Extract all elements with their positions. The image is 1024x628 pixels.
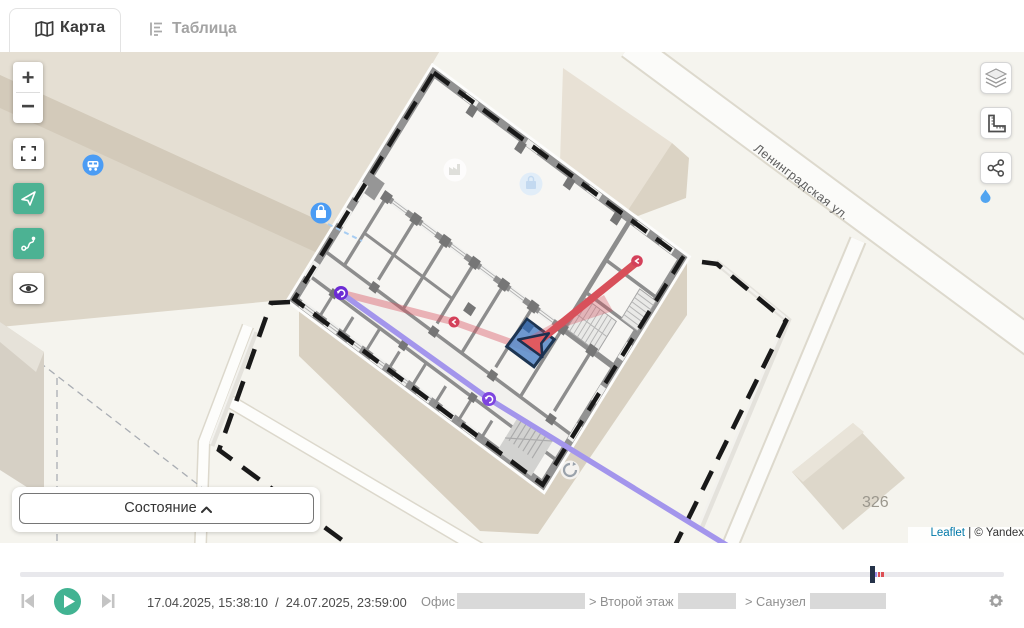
svg-text:326: 326 bbox=[862, 494, 889, 511]
